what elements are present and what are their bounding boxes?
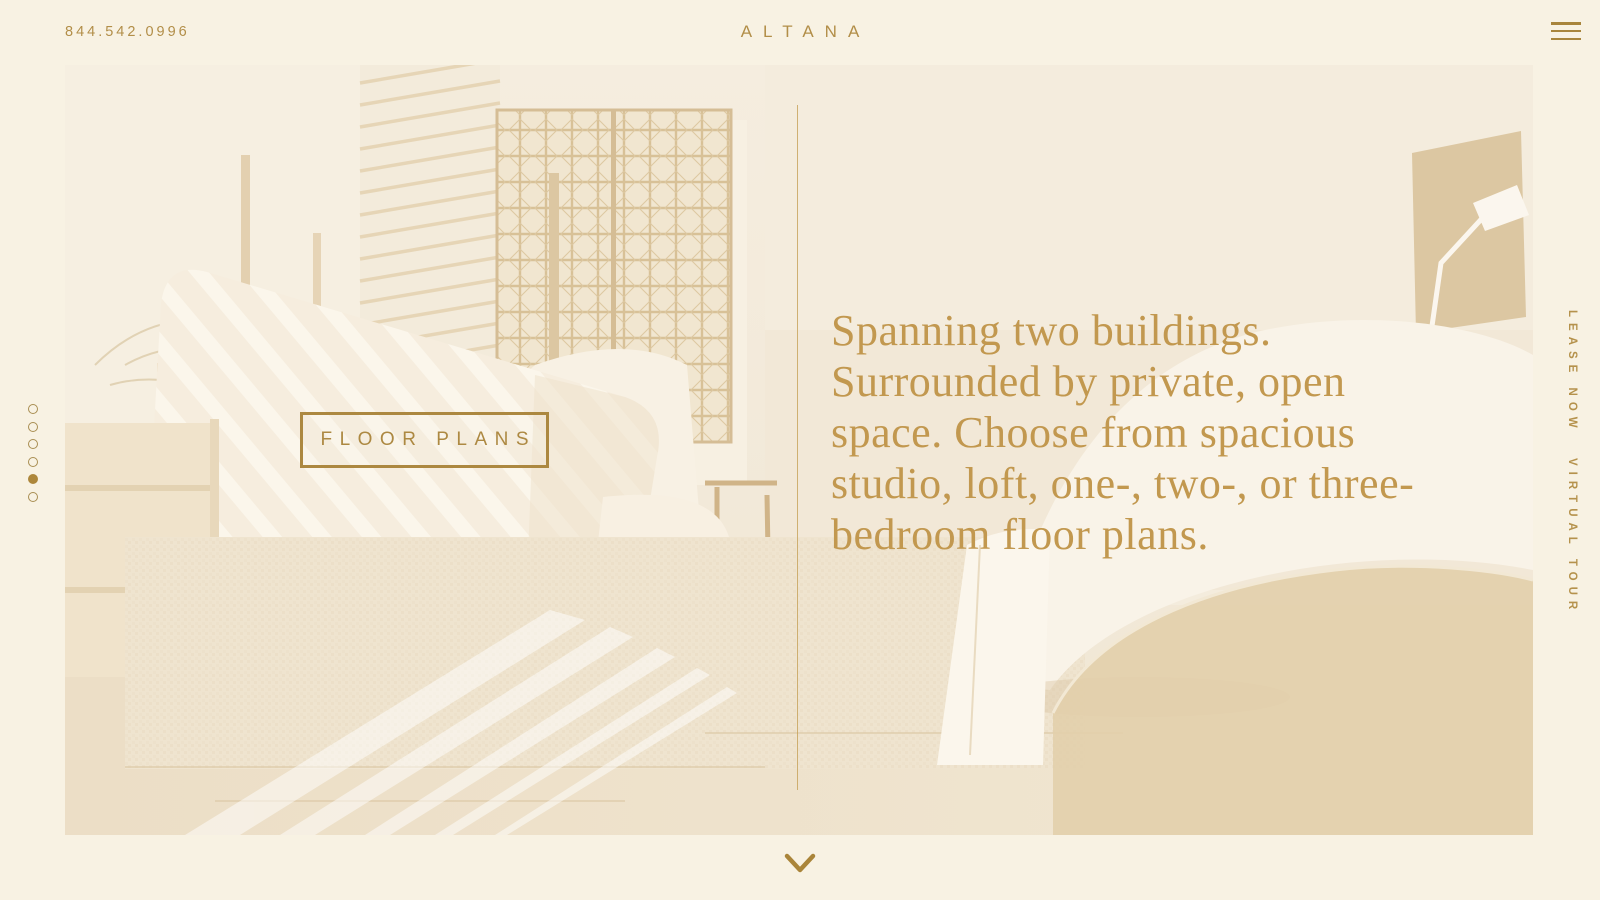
vertical-divider (797, 105, 798, 790)
virtual-tour-link[interactable]: VIRTUAL TOUR (1566, 458, 1578, 615)
headline-line: studio, loft, one-, two-, or three- (831, 458, 1491, 509)
side-nav: LEASE NOW VIRTUAL TOUR (1566, 310, 1578, 615)
slide-dot-6[interactable] (28, 492, 38, 502)
brand-logo[interactable]: ALTANA (0, 22, 1600, 42)
headline-line: Surrounded by private, open (831, 356, 1491, 407)
slide-dot-5[interactable] (28, 474, 38, 484)
headline-line: space. Choose from spacious (831, 407, 1491, 458)
hamburger-icon (1551, 30, 1581, 33)
slide-dot-4[interactable] (28, 457, 38, 467)
headline-line: Spanning two buildings. (831, 305, 1491, 356)
slide-dot-3[interactable] (28, 439, 38, 449)
scroll-down-button[interactable] (782, 850, 818, 878)
headline-line: bedroom floor plans. (831, 509, 1491, 560)
lease-now-link[interactable]: LEASE NOW (1566, 310, 1578, 434)
slide-dot-2[interactable] (28, 422, 38, 432)
floor-plans-button[interactable]: FLOOR PLANS (300, 412, 549, 468)
hero-headline: Spanning two buildings. Surrounded by pr… (831, 305, 1491, 560)
hamburger-icon (1551, 38, 1581, 41)
chevron-down-icon (782, 850, 818, 878)
hamburger-icon (1551, 22, 1581, 25)
hero-section: FLOOR PLANS Spanning two buildings. Surr… (65, 65, 1533, 835)
slide-dot-1[interactable] (28, 404, 38, 414)
landing-page: 844.542.0996 ALTANA (0, 0, 1600, 900)
menu-button[interactable] (1551, 22, 1581, 40)
slide-dots (28, 404, 38, 509)
